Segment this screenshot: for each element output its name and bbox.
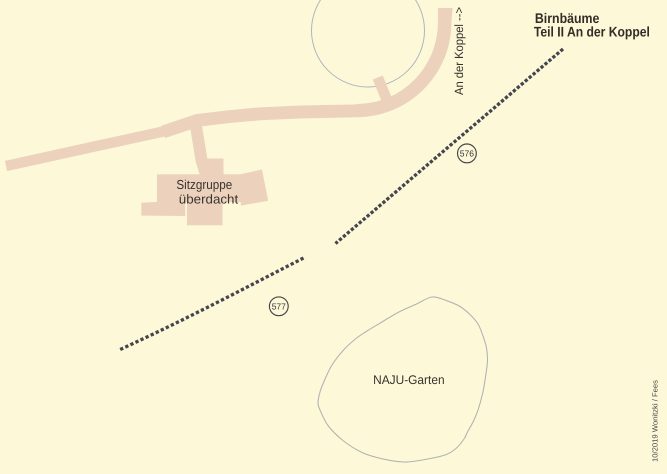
svg-text:577: 577 bbox=[272, 301, 286, 311]
svg-text:überdacht: überdacht bbox=[179, 192, 239, 207]
svg-text:10/2019 Wonitzki / Fees: 10/2019 Wonitzki / Fees bbox=[651, 380, 660, 462]
svg-text:An der Koppel -->: An der Koppel --> bbox=[452, 7, 466, 95]
svg-text:Teil II An der Koppel: Teil II An der Koppel bbox=[534, 24, 650, 40]
svg-text:576: 576 bbox=[460, 149, 474, 159]
svg-text:NAJU-Garten: NAJU-Garten bbox=[373, 373, 445, 387]
svg-text:Sitzgruppe: Sitzgruppe bbox=[176, 177, 232, 192]
